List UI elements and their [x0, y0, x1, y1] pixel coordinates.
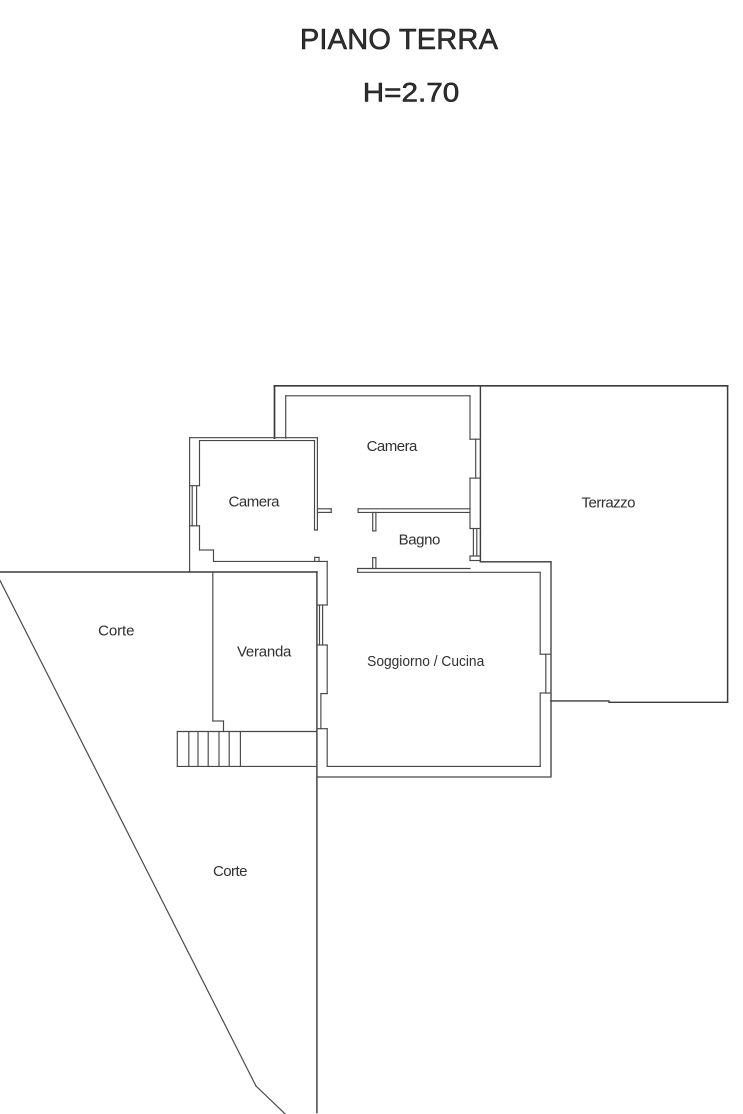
svg-text:Veranda: Veranda	[237, 644, 292, 661]
svg-text:H=2.70: H=2.70	[363, 78, 460, 108]
svg-text:PIANO TERRA: PIANO TERRA	[300, 24, 499, 56]
svg-text:Bagno: Bagno	[399, 532, 441, 549]
svg-text:Camera: Camera	[229, 494, 281, 511]
svg-text:Camera: Camera	[367, 438, 418, 455]
svg-text:Corte: Corte	[98, 623, 134, 640]
svg-text:Corte: Corte	[213, 863, 248, 880]
svg-text:Soggiorno / Cucina: Soggiorno / Cucina	[367, 653, 485, 670]
svg-text:Terrazzo: Terrazzo	[582, 495, 636, 512]
